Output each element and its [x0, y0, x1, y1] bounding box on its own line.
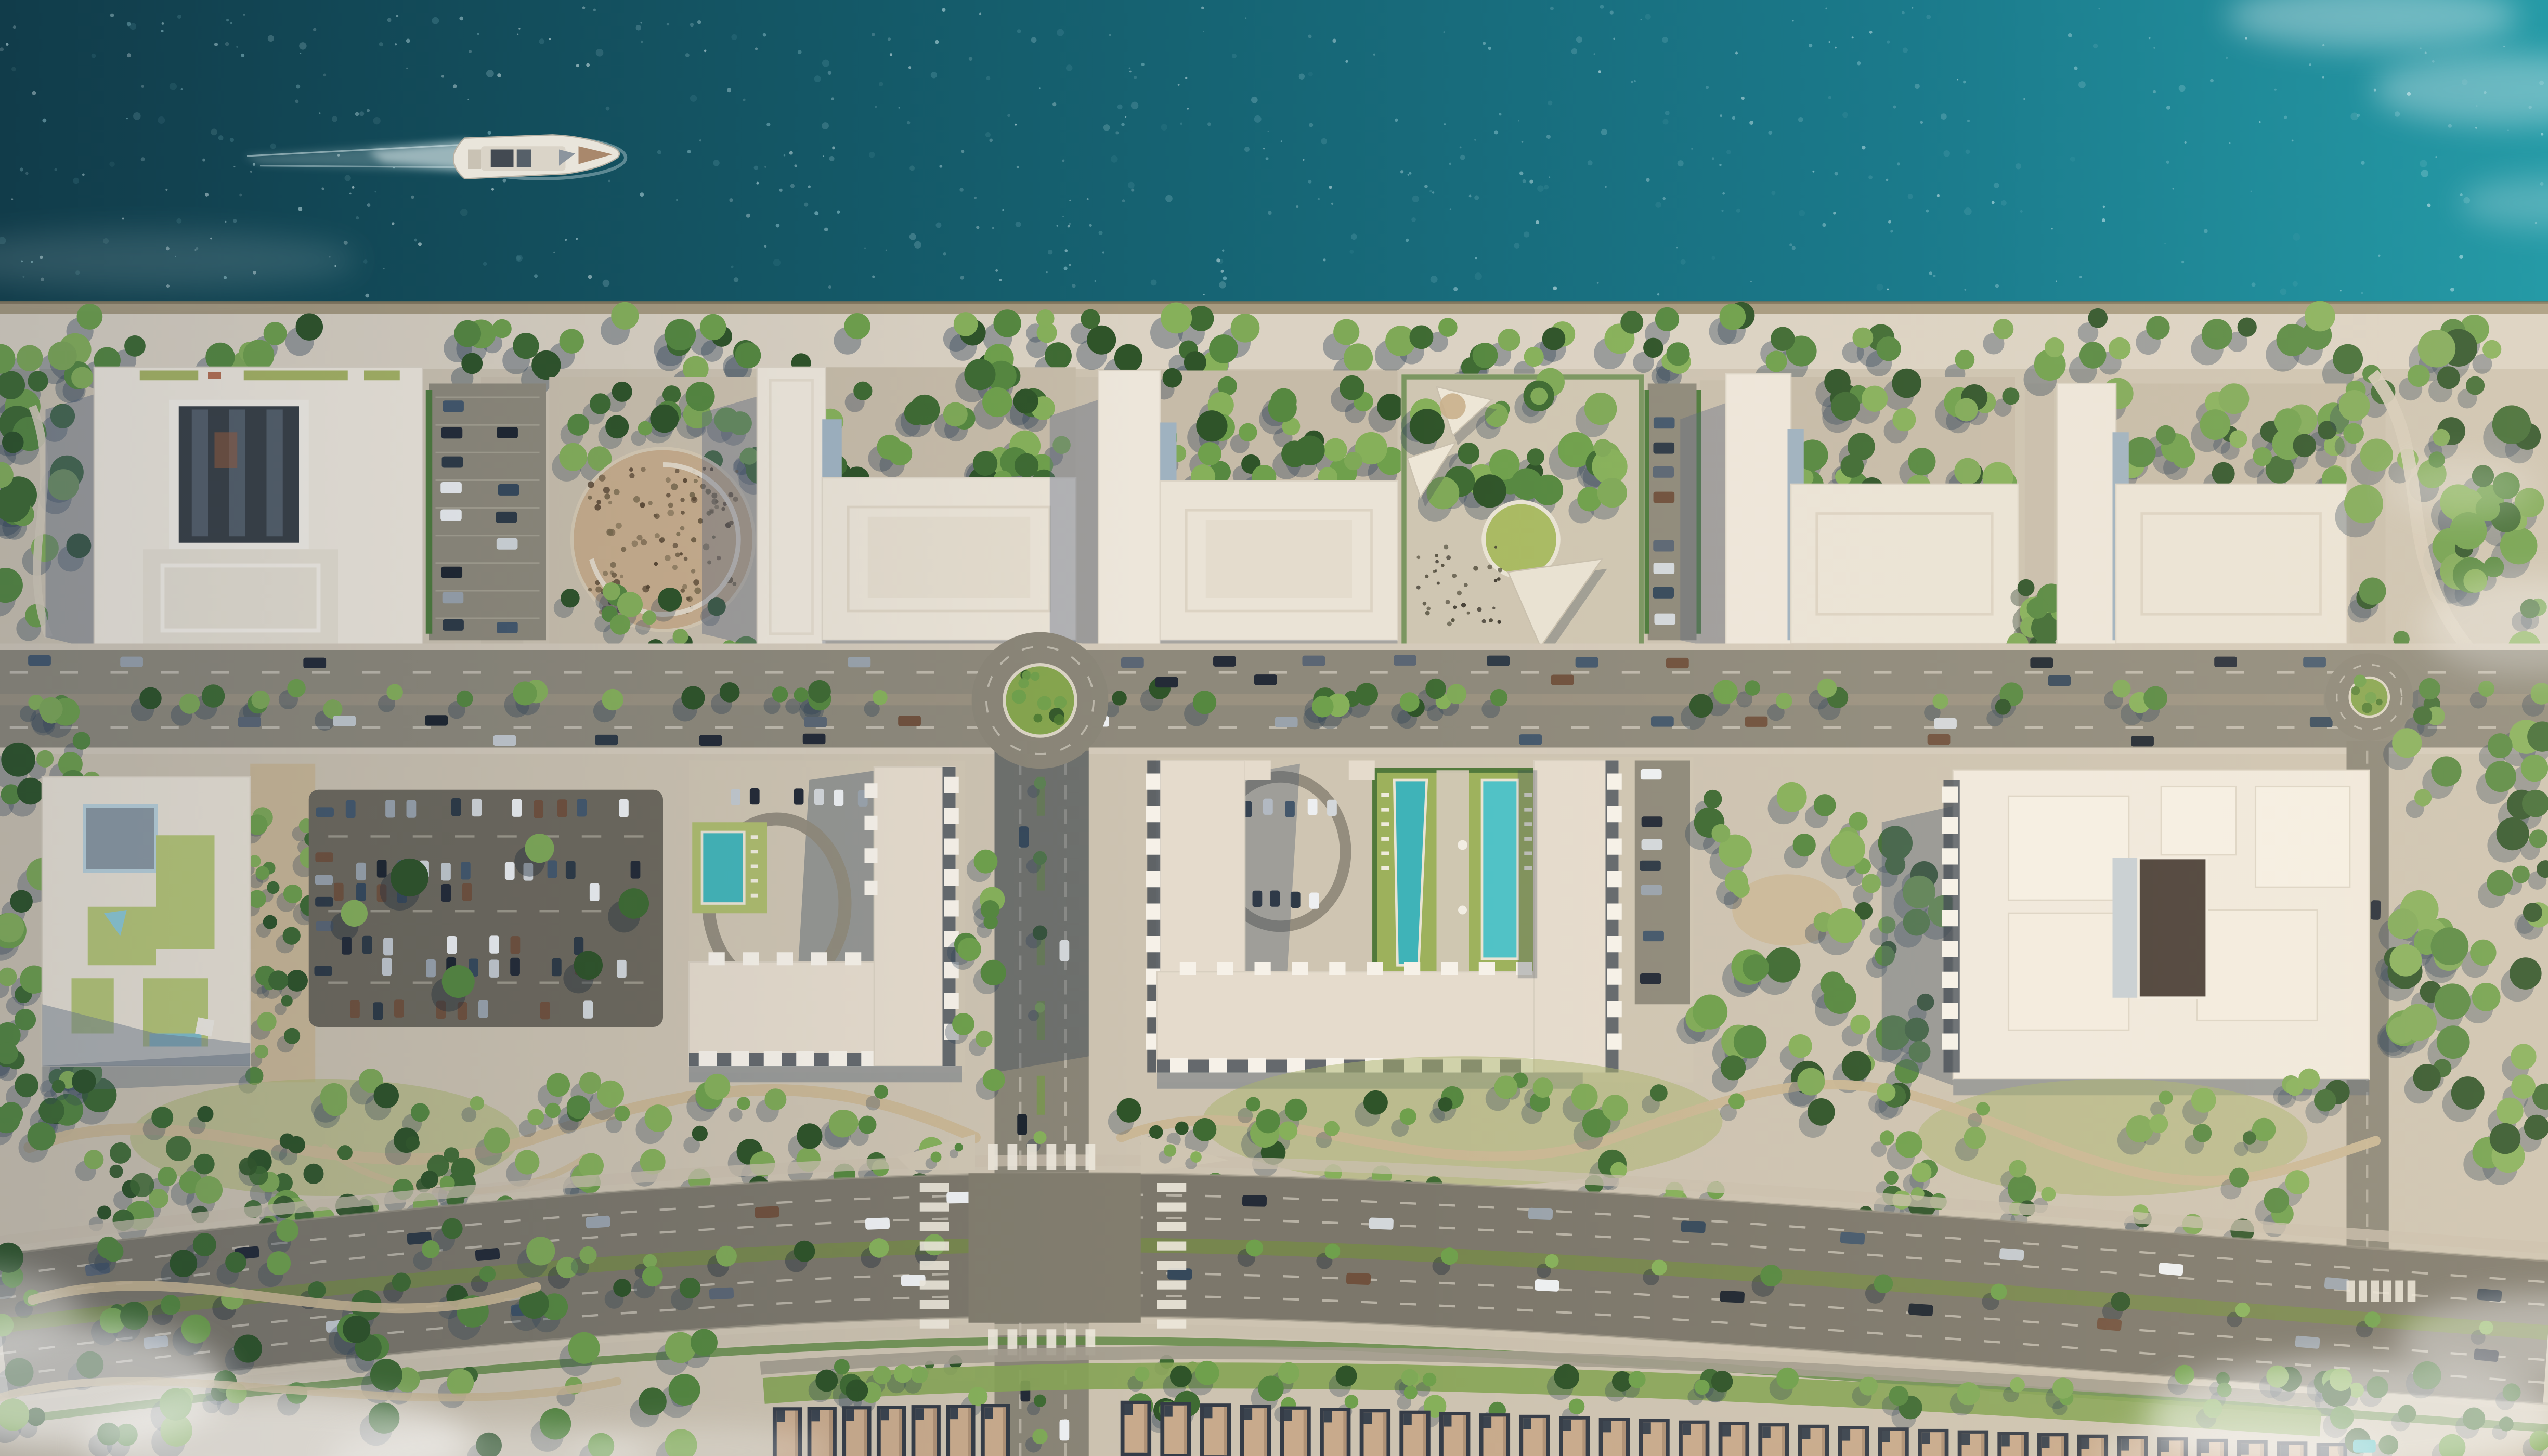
aerial-masterplan-view — [0, 0, 2548, 1456]
boat-cabin-mid — [517, 150, 531, 167]
cloud-12 — [2389, 458, 2535, 517]
aerial-render — [0, 0, 2548, 1456]
boat-stern — [468, 150, 481, 170]
boat-cabin-aft — [491, 150, 514, 167]
warm-light-east — [0, 302, 2548, 1456]
